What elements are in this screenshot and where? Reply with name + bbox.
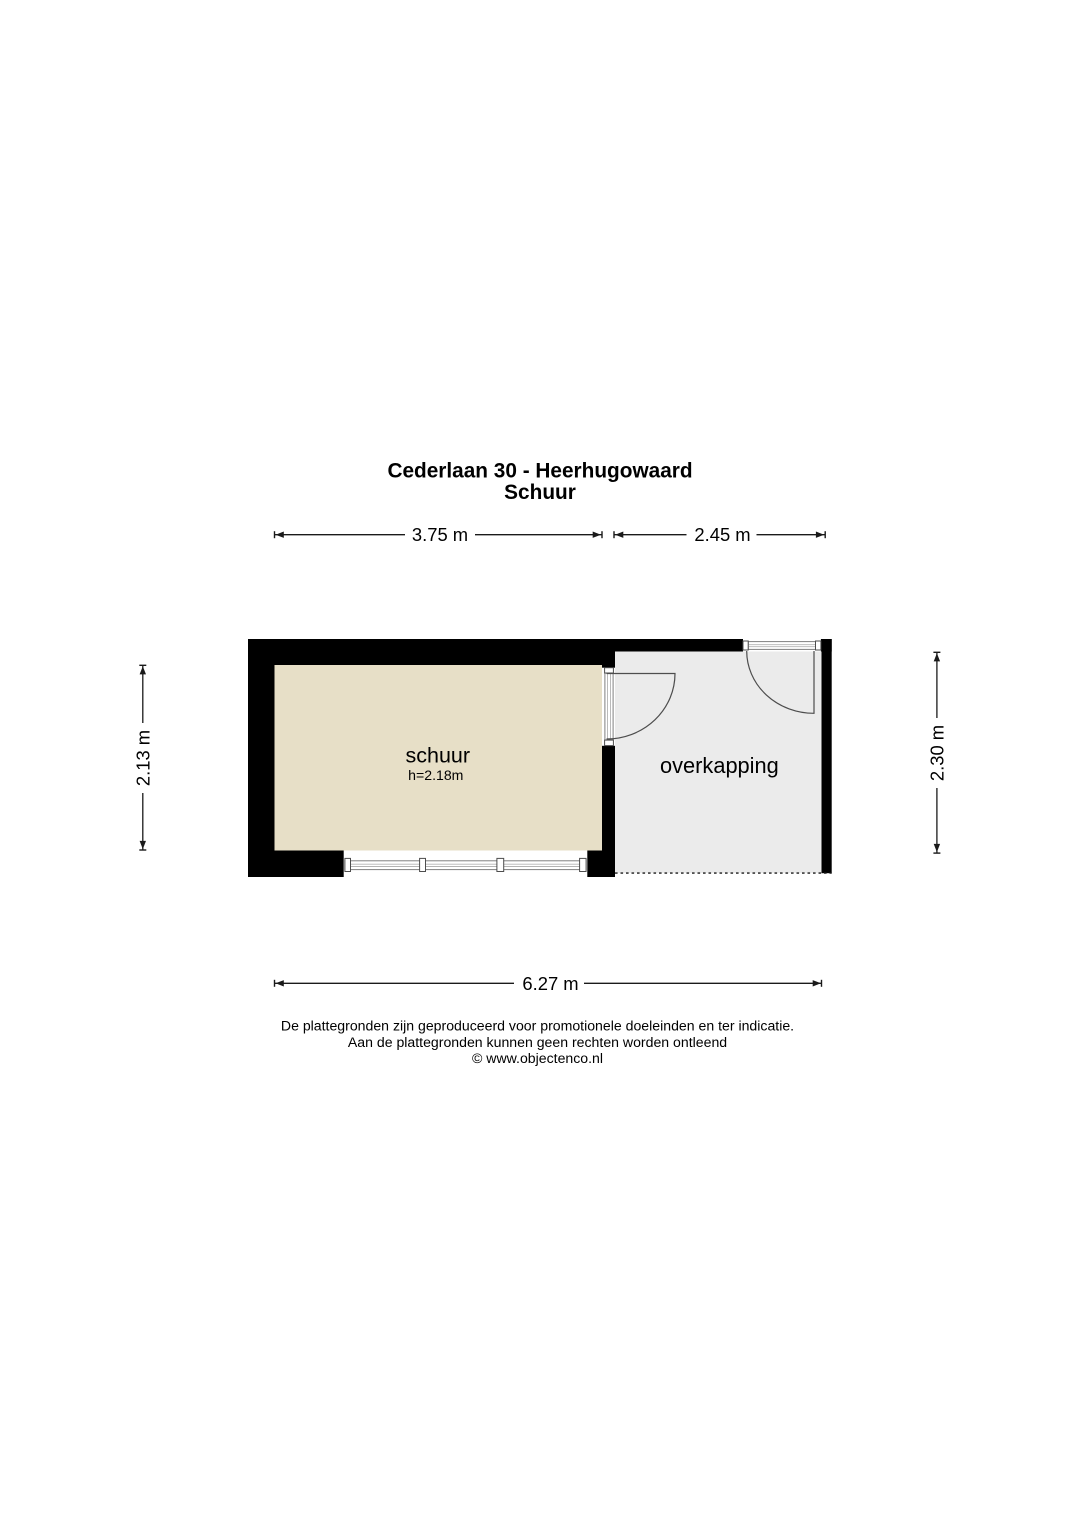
svg-text:2.13 m: 2.13 m xyxy=(132,730,153,786)
svg-text:overkapping: overkapping xyxy=(660,753,779,778)
svg-text:© www.objectenco.nl: © www.objectenco.nl xyxy=(472,1050,603,1066)
svg-text:3.75 m: 3.75 m xyxy=(412,524,468,545)
svg-text:Cederlaan 30 - Heerhugowaard: Cederlaan 30 - Heerhugowaard xyxy=(387,460,692,483)
svg-text:Aan de plattegronden kunnen ge: Aan de plattegronden kunnen geen rechten… xyxy=(348,1034,727,1050)
svg-text:schuur: schuur xyxy=(406,743,471,767)
svg-text:Schuur: Schuur xyxy=(504,481,576,504)
svg-text:2.30 m: 2.30 m xyxy=(927,725,948,781)
svg-text:6.27 m: 6.27 m xyxy=(522,973,578,994)
svg-text:De plattegronden zijn geproduc: De plattegronden zijn geproduceerd voor … xyxy=(281,1018,794,1034)
svg-text:h=2.18m: h=2.18m xyxy=(408,767,463,783)
svg-text:2.45 m: 2.45 m xyxy=(694,524,750,545)
